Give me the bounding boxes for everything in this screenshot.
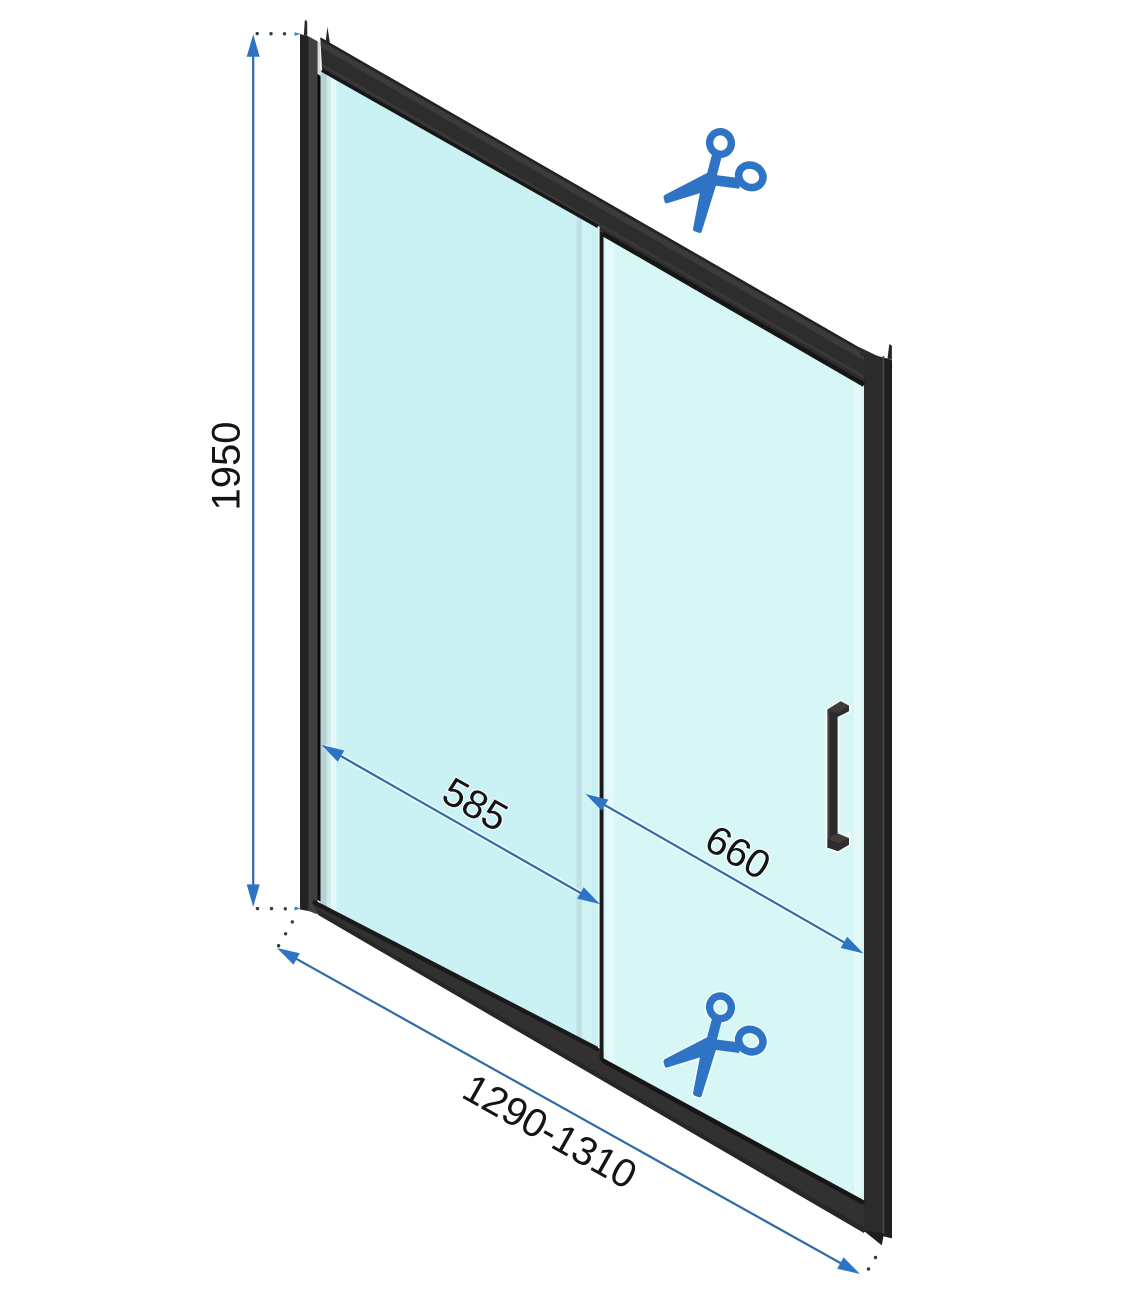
svg-text:1950: 1950 [205, 422, 249, 511]
